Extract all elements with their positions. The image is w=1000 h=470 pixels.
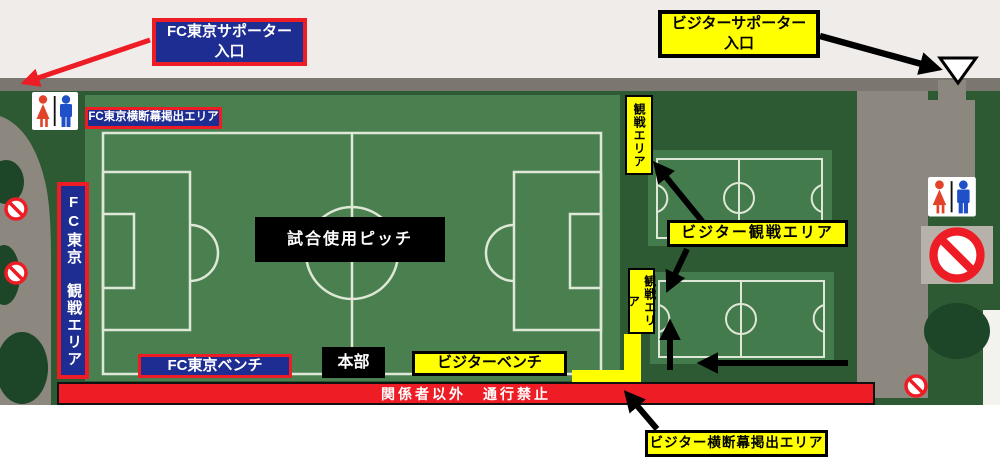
visitor-bench-label: ビジターベンチ <box>412 351 567 376</box>
headquarters-label: 本部 <box>322 347 385 378</box>
visitor-supporter-entrance-label: ビジターサポーター 入口 <box>658 10 820 58</box>
visitor-area-arrow-south-icon <box>669 249 687 287</box>
fc-entrance-arrow-icon <box>26 40 150 82</box>
viewing-area-north-label: 観戦エリア <box>625 95 653 175</box>
venue-map: 関係者以外 通行禁止 FC東京サポーター 入口 ビジターサポーター 入口 FC東… <box>0 0 1000 470</box>
visitor-banner-arrow-icon <box>628 395 657 429</box>
fc-viewing-area-label: FC東京 観戦エリア <box>57 182 89 379</box>
visitor-banner-area-label: ビジター横断幕掲出エリア <box>645 430 828 457</box>
viewing-area-south-label: 観戦エリア <box>628 268 655 334</box>
fc-bench-label: FC東京ベンチ <box>138 354 292 378</box>
arrow-graphics <box>0 0 1000 470</box>
fc-banner-area-label: FC東京横断幕掲出エリア <box>85 107 222 129</box>
visitor-area-arrow-north-icon <box>657 166 706 226</box>
visitor-entrance-arrow-icon <box>820 36 936 68</box>
entrance-triangle-icon <box>940 58 976 83</box>
fc-supporter-entrance-label: FC東京サポーター 入口 <box>152 18 307 66</box>
visitor-viewing-area-label: ビジター観戦エリア <box>667 220 848 247</box>
match-pitch-label: 試合使用ピッチ <box>255 217 445 262</box>
